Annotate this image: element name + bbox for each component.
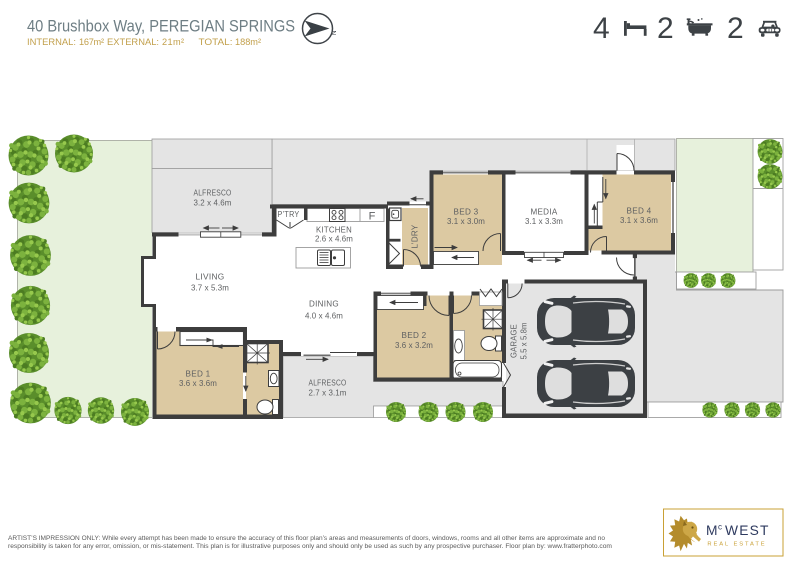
svg-text:2: 2 [727, 12, 744, 45]
svg-text:BED 1: BED 1 [186, 369, 211, 379]
svg-text:2.6 x 4.6m: 2.6 x 4.6m [315, 234, 353, 244]
svg-text:c: c [718, 523, 722, 532]
svg-text:40 Brushbox Way, PEREGIAN SPRI: 40 Brushbox Way, PEREGIAN SPRINGS [27, 18, 295, 36]
svg-text:4.0 x 4.6m: 4.0 x 4.6m [305, 311, 343, 321]
svg-text:3.1 x 3.0m: 3.1 x 3.0m [447, 216, 485, 226]
svg-text:DINING: DINING [309, 299, 339, 309]
svg-text:REAL ESTATE: REAL ESTATE [707, 542, 766, 548]
svg-text:ARTIST’S IMPRESSION ONLY: Whil: ARTIST’S IMPRESSION ONLY: While every at… [8, 536, 606, 542]
svg-text:INTERNAL:: INTERNAL: [27, 37, 76, 47]
svg-text:N: N [330, 31, 337, 36]
svg-text:ALFRESCO: ALFRESCO [194, 188, 232, 198]
svg-text:5.5 x 5.8m: 5.5 x 5.8m [519, 323, 529, 360]
svg-text:MEDIA: MEDIA [531, 207, 558, 217]
svg-text:167m²: 167m² [79, 37, 104, 47]
svg-text:L’DRY: L’DRY [410, 224, 420, 248]
svg-text:P’TRY: P’TRY [278, 209, 300, 219]
svg-text:WEST: WEST [725, 523, 770, 538]
svg-text:188m²: 188m² [235, 37, 261, 47]
svg-text:TOTAL:: TOTAL: [199, 37, 233, 47]
svg-text:3.6 x 3.2m: 3.6 x 3.2m [395, 340, 433, 350]
svg-text:BED 4: BED 4 [627, 206, 652, 216]
svg-text:responsibility is taken for an: responsibility is taken for any error, o… [8, 544, 612, 550]
svg-text:3.1 x 3.3m: 3.1 x 3.3m [525, 216, 563, 226]
svg-text:ALFRESCO: ALFRESCO [309, 378, 347, 388]
svg-text:M: M [706, 523, 718, 538]
svg-text:3.1 x 3.6m: 3.1 x 3.6m [620, 215, 658, 225]
svg-text:BED 3: BED 3 [454, 207, 479, 217]
svg-text:3.6 x 3.6m: 3.6 x 3.6m [179, 378, 217, 388]
svg-text:3.7 x 5.3m: 3.7 x 5.3m [191, 283, 229, 293]
svg-text:4: 4 [593, 12, 610, 45]
svg-text:2: 2 [657, 12, 674, 45]
svg-text:LIVING: LIVING [196, 272, 225, 282]
svg-text:EXTERNAL:: EXTERNAL: [107, 37, 159, 47]
svg-text:BED 2: BED 2 [402, 330, 427, 340]
svg-text:21m²: 21m² [162, 37, 184, 47]
svg-text:2.7 x 3.1m: 2.7 x 3.1m [309, 388, 347, 398]
svg-text:GARAGE: GARAGE [509, 324, 519, 358]
svg-text:3.2 x 4.6m: 3.2 x 4.6m [194, 198, 232, 208]
svg-text:F: F [369, 211, 376, 223]
